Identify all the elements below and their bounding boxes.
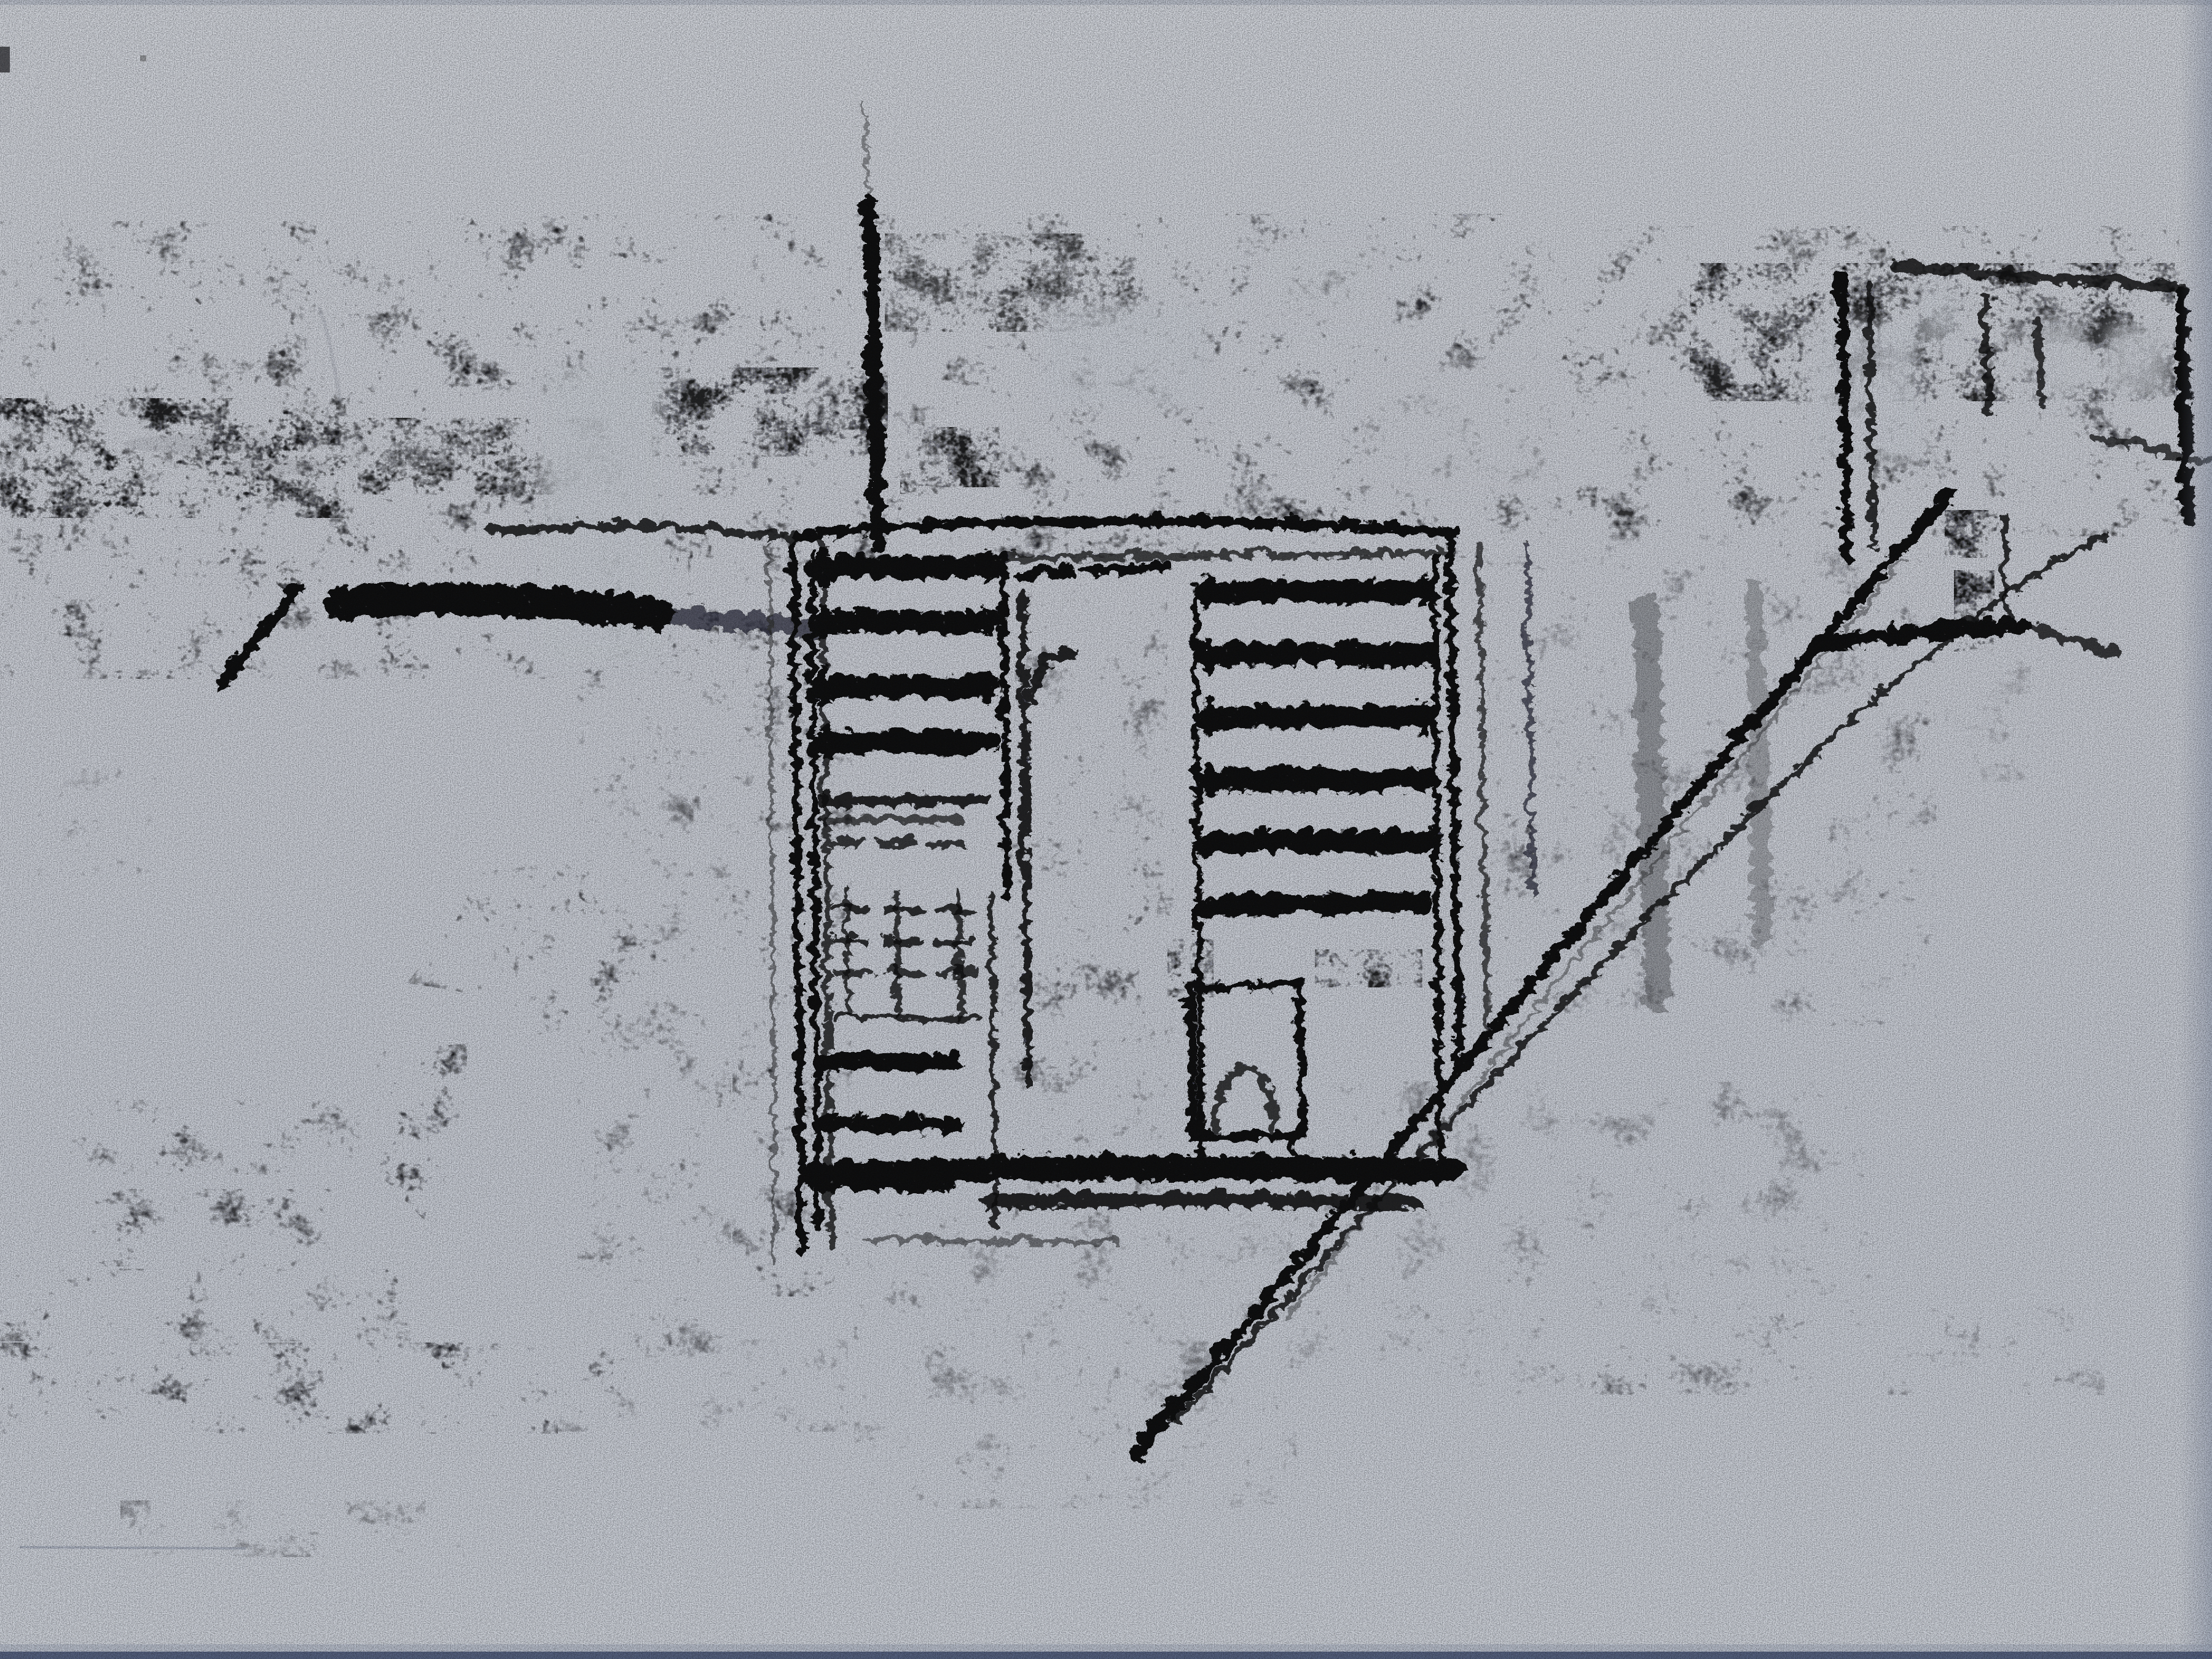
charcoal-sketch-canvas: Charcoal sketch - aerial street corner w… xyxy=(0,0,2212,1659)
sketch-photo: Charcoal sketch - aerial street corner w… xyxy=(0,0,2212,1659)
paper-grain xyxy=(0,0,2212,1659)
